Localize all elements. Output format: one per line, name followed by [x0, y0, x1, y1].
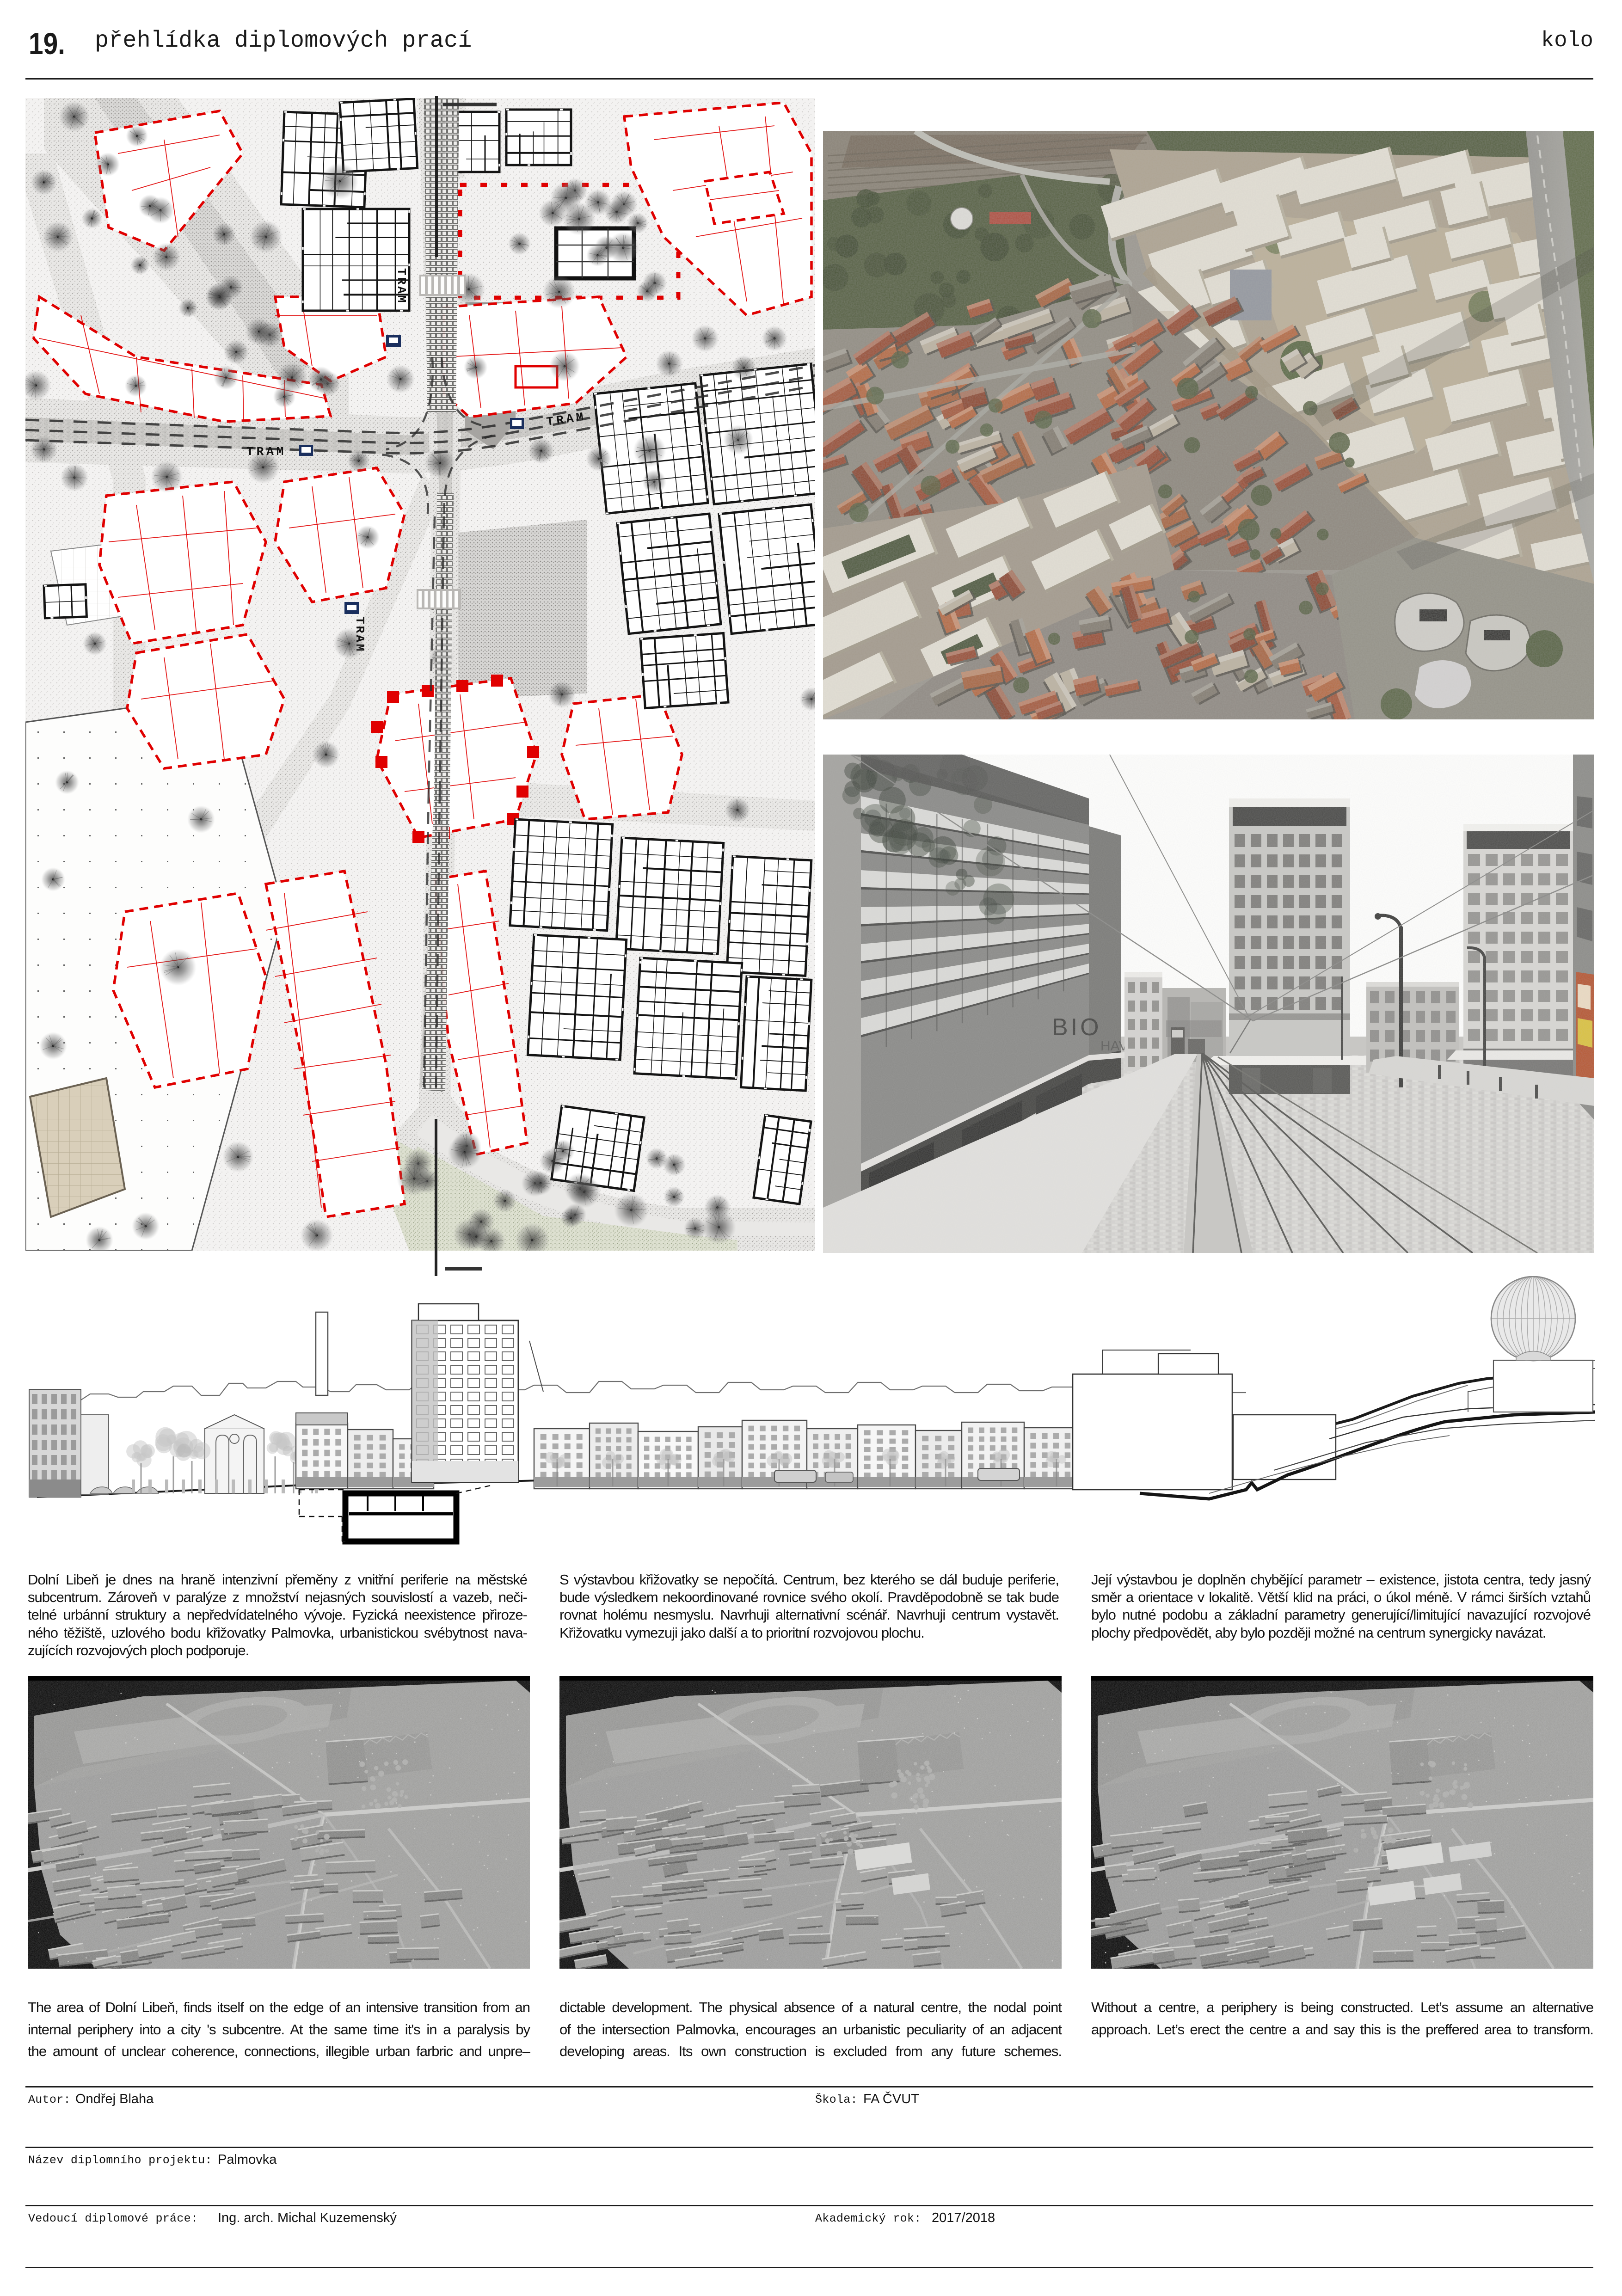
svg-text:HAV: HAV — [1100, 1038, 1128, 1054]
svg-text:TRAM: TRAM — [394, 268, 408, 304]
svg-text:TRAM: TRAM — [353, 617, 367, 653]
svg-text:TRAM: TRAM — [246, 445, 286, 459]
svg-text:BIO: BIO — [1052, 1014, 1102, 1041]
